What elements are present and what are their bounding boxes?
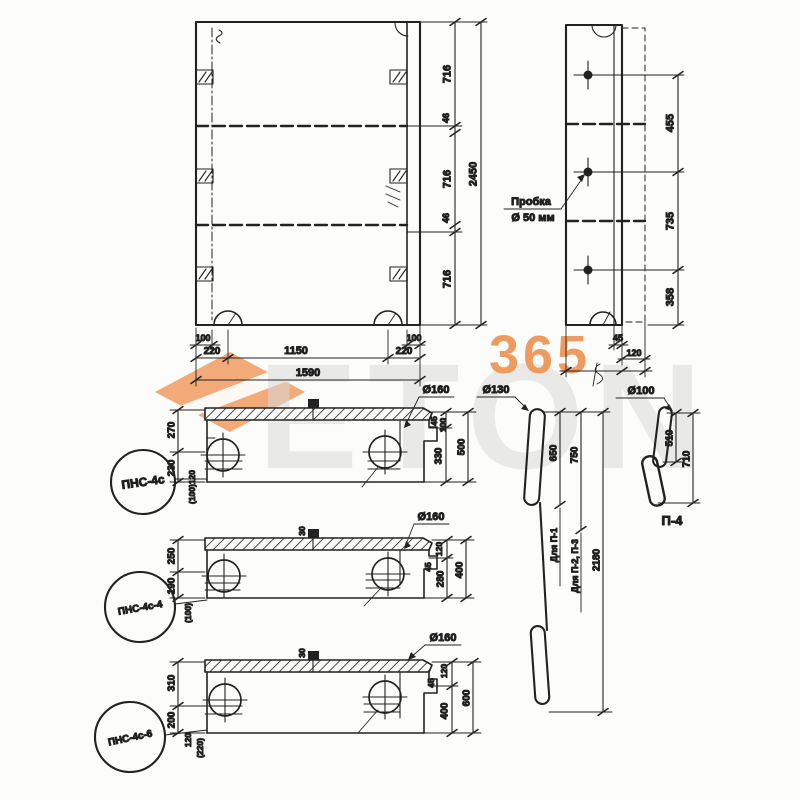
plug-hole <box>574 158 602 186</box>
section-2-left-dim-2: 190 <box>167 577 178 594</box>
section-3: 30 ПНС-4с-6 310 200 120 (220) 120 45 400… <box>95 632 481 772</box>
rod-dim-1: 650 <box>549 444 560 461</box>
section-3-small-dim-2: 45 <box>426 678 436 688</box>
section-2-stub-dim: 30 <box>297 526 307 536</box>
section-1-left-dim-2: 230 <box>167 459 178 476</box>
section-1-left-note: (100)120 <box>187 470 197 504</box>
plan-bottom-dim-3: 220 <box>396 346 413 357</box>
plug-hole <box>574 61 602 89</box>
break-mark <box>216 30 222 43</box>
section-3-overall-dim: 600 <box>462 689 473 706</box>
section-3-stub-dim: 30 <box>297 648 307 658</box>
plan-overall-height: 2450 <box>468 162 480 186</box>
section-2-mid-dim: 280 <box>436 570 447 587</box>
plan-overall-width: 1590 <box>296 367 320 379</box>
leader-arrow <box>577 174 585 182</box>
section-3-dia: Ø160 <box>430 632 457 644</box>
plan-seg-dim-3: 716 <box>442 170 454 188</box>
plan-seg-dim-4: 46 <box>441 213 451 223</box>
section-3-left-note: 120 <box>183 733 193 747</box>
plug-note-line1: Пробка <box>511 196 552 208</box>
section-3-tag: ПНС-4с-6 <box>107 728 154 748</box>
blueprint-canvas: ETON 365 716 46 716 46 716 2450 <box>0 0 800 800</box>
plug-hole <box>574 256 602 284</box>
section-2-left-dim-1: 250 <box>167 547 178 564</box>
corner-notch <box>395 23 408 36</box>
rod-usage-1: Для П-1 <box>549 528 559 562</box>
rod-bottom-loop <box>530 626 549 705</box>
side-hole-dim-3: 358 <box>665 288 677 306</box>
side-hole-dim-1: 455 <box>665 114 677 132</box>
rod-dim-2: 750 <box>570 446 581 463</box>
plan-seg-dim-2: 46 <box>441 113 451 123</box>
rod-dia-label: Ø130 <box>483 384 510 396</box>
section-2-overall-dim: 400 <box>455 561 466 578</box>
plan-seg-dim-1: 716 <box>442 65 454 83</box>
hook-dim-2: 710 <box>682 450 693 467</box>
plan-view: 716 46 716 46 716 2450 100 100 220 1150 … <box>190 19 487 387</box>
section-1-tag: ПНС-4с <box>121 472 166 492</box>
section-2: 30 ПНС-4с-4 250 190 (100) 120 45 280 400… <box>105 511 474 642</box>
section-3-small-dim-1: 120 <box>439 664 449 678</box>
section-1-dia: Ø160 <box>423 384 450 396</box>
section-3-left-dim-2: 200 <box>167 711 178 728</box>
section-2-tag: ПНС-4с-4 <box>117 599 164 618</box>
section-1-mid-dim: 330 <box>434 447 445 464</box>
section-1-small-dim-2: 100 <box>438 418 448 432</box>
hook-dia-label: Ø100 <box>628 385 655 397</box>
rod-dim-3: 2180 <box>592 548 603 571</box>
plan-seg-dim-5: 716 <box>442 270 454 288</box>
rod-usage-2: Для П-2, П-3 <box>570 539 580 593</box>
anchor-loop <box>366 552 410 596</box>
plan-bottom-dim-1: 220 <box>204 346 221 357</box>
side-thickness-dim: 120 <box>626 348 641 358</box>
plan-edge-dim-right: 100 <box>406 333 421 343</box>
section-2-dia: Ø160 <box>418 511 445 523</box>
section-2-small-dim-2: 45 <box>423 562 433 572</box>
plan-bottom-dim-2: 1150 <box>284 345 308 357</box>
watermark-number: 365 <box>489 325 591 385</box>
hook-dim-1: 510 <box>665 429 676 446</box>
anchor-loop <box>202 554 246 598</box>
anchor-loop <box>203 678 247 722</box>
section-2-left-note: (100) <box>183 603 193 623</box>
section-3-mid-dim: 400 <box>440 702 451 719</box>
caulking-mark <box>386 186 400 207</box>
hook-tag: П-4 <box>662 513 684 528</box>
section-2-small-dim-1: 120 <box>434 542 444 556</box>
plug-note-line2: Ø 50 мм <box>511 212 554 224</box>
section-1-left-dim-1: 270 <box>167 421 178 438</box>
section-1-overall-dim: 500 <box>457 438 468 455</box>
section-3-left-note2: (220) <box>195 738 205 758</box>
side-hole-dim-2: 735 <box>665 212 677 230</box>
plan-edge-dim-left: 100 <box>195 333 210 343</box>
section-3-left-dim-1: 310 <box>167 674 178 691</box>
